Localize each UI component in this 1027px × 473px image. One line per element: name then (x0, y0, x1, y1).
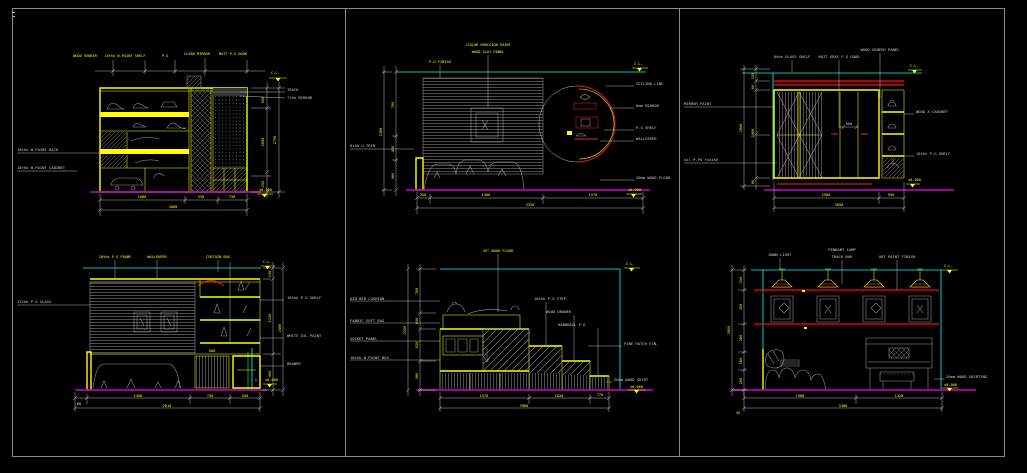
p3-dim-h: 2500 (822, 193, 831, 197)
p1-dim-h-total: 3060 (169, 205, 178, 209)
p4-right-note: 18thk P.G SHELF (287, 295, 322, 300)
p6-elev-floor: ±0.000 (944, 383, 957, 387)
p5-dim-v: 580 (415, 373, 419, 380)
elevation-flag-icon (910, 184, 915, 188)
p4-left-note: 12thk P.G GLASS (17, 299, 52, 304)
p5-left-note: 18thk W.PAINT BOX (350, 355, 390, 360)
p1-annotations: 18thk W.PAINT RACK 18thk W.PAINT CABINET… (17, 87, 313, 171)
p4-dim-v: 400 (268, 371, 272, 378)
picture-frames (771, 296, 931, 322)
p3-drawing: 600 (742, 73, 954, 190)
p6-dim-v: 350 (739, 304, 743, 311)
bed (93, 364, 181, 388)
p3-elev-floor: ±0.000 (908, 178, 921, 182)
p4-top-note: CURTAIN BOX (206, 255, 231, 259)
p5-left-note: SOCKET PANEL (350, 336, 378, 341)
p2-elev-floor: ±0.000 (628, 188, 641, 192)
p5-step-note: WOOD DRAWER (546, 309, 572, 314)
p5-dim-h: 1620 (555, 394, 564, 398)
p4-dim-h: 750 (207, 394, 214, 398)
p2-dim-v: 700 (391, 102, 395, 109)
steps (529, 346, 609, 390)
p1-dim-v: 2000 (261, 138, 265, 147)
p3-dim-v: 80 (751, 180, 755, 184)
p2-floor-note: 20mm WOOD FLOOR (636, 175, 671, 180)
p3-dim-h-total: 3050 (835, 203, 844, 207)
p2-right-note: CEILING LINE (636, 81, 664, 86)
p5-dim-h-total: 3960 (520, 404, 529, 408)
p3-right-note: WOOD X CABINET (916, 109, 949, 114)
p1-dim-v-total: 2750 (273, 136, 277, 145)
p2-dim-h: 350 (420, 193, 427, 197)
p5-top-note: 45° WOOD FLOOR (483, 249, 514, 253)
p2-elev-top: C.L. (634, 62, 643, 66)
p1-dim-v: 500 (261, 97, 265, 104)
p1-right-note: 7thk MIRROR (287, 95, 313, 100)
p1-left-note: 18thk W.PAINT CABINET (17, 165, 66, 170)
p4-dim-v: 130 (268, 271, 272, 278)
p3-inner-dim: 600 (846, 121, 854, 126)
p5-step-note: HANDRAIL P.G (558, 322, 586, 327)
p3-dim-v: 2400 (751, 129, 755, 138)
p1-dim-h: 730 (229, 195, 236, 199)
p5-elev-floor: ±0.000 (630, 385, 643, 389)
p5-dim-v: 700 (415, 288, 419, 295)
p3-top-note: WOOD VENEER PANEL (861, 47, 901, 52)
piano (866, 338, 932, 390)
p1-dim-h: 1800 (138, 195, 147, 199)
cad-sheet: WOOD VENEER 18thk W.PAINT SHELF P.G CLEA… (0, 0, 1027, 473)
p5-drawing (418, 269, 653, 390)
elevation-flag-icon (637, 68, 642, 72)
p6-dim-v-total: 2850 (727, 326, 731, 335)
p1-top-note: 18thk W.PAINT SHELF (104, 54, 145, 58)
p4-right-note: DRAWER (287, 361, 301, 366)
p2-dim-h-total: 3320 (526, 203, 535, 207)
p6-annotations: DOWN LIGHT PENDANT LAMP TRACK BAR ART PA… (769, 247, 988, 379)
p4-top-note: WALLPAPER (147, 255, 167, 259)
p1-dim-v: 250 (261, 181, 265, 188)
p6-drawing (732, 269, 976, 390)
p1-elev-top: C.L. (271, 71, 280, 75)
p1-top-note: MATT P.G DOOR (219, 52, 248, 56)
p2-dim-v: 480 (391, 173, 395, 180)
p5-left-note: FABRIC SOFT BAG (350, 318, 385, 323)
elevation-flag-icon (947, 270, 952, 274)
p6-top-note: PENDANT LAMP (828, 247, 856, 252)
p2-top-note: P.G FINISH (429, 60, 451, 64)
p6-floor-note: 20mm WOOD SKIRTING (946, 374, 988, 379)
p6-top-note: TRACK BAR (832, 254, 853, 259)
p4-dim-h: 1450 (134, 394, 143, 398)
p4-elev-floor: ±0.000 (265, 378, 278, 382)
elevation-flag-icon (634, 390, 639, 394)
p4-dim-h-total: 2810 (163, 404, 172, 408)
p1-dim-h: 530 (198, 195, 205, 199)
p3-left-note: MIRROR PAINT (684, 101, 712, 106)
p3-dim-v: 60 (751, 85, 755, 89)
p2-left-note: 8thk U-TRIM (350, 143, 376, 148)
p5-dim-h: 1570 (480, 394, 489, 398)
p3-top-note: 8thk GLASS SHELF (774, 54, 811, 59)
bed (765, 350, 826, 390)
p2-dim-h: 1570 (589, 193, 598, 197)
p2-right-note: P.G SHELF (636, 125, 657, 130)
p6-dim-v: 200 (739, 378, 743, 385)
p5-right-note: PINE HATCH FIN. (624, 341, 658, 346)
p6-dim-v: 280 (739, 335, 743, 342)
p5-dim-h: 770 (597, 393, 604, 397)
p3-dim-v-total: 2840 (739, 124, 743, 133)
elevation-flag-icon (267, 384, 272, 388)
p6-dim-v: 250 (739, 277, 743, 284)
p4-right-note: WHITE OIL PAINT (287, 333, 322, 338)
elevation-flag-icon (276, 78, 281, 82)
p1-top-note: CLEAR MIRROR (184, 52, 211, 56)
p1-elev-floor: ±0.000 (259, 188, 272, 192)
p5-step-note: 18thk P.G STEP (534, 296, 567, 301)
p3-dim-v: 150 (751, 73, 755, 80)
p6-dim-h: 1980 (796, 394, 805, 398)
elevation-flag-icon (631, 194, 636, 198)
p3-right-note: 18thk P.G SHELF (916, 151, 951, 156)
p2-right-note: WALLPAPER (636, 136, 657, 141)
p6-dim-h-total: 3300 (839, 404, 848, 408)
p5-left-note: KID BED CUSHION (350, 296, 385, 301)
p1-right-note: TRACK (287, 87, 299, 92)
elevation-panel-1: WOOD VENEER 18thk W.PAINT SHELF P.G CLEA… (15, 8, 345, 238)
p3-left-note: oil P.PG finish (684, 157, 718, 162)
p1-left-note: 18thk W.PAINT RACK (17, 147, 59, 152)
p6-elev-top: C.L. (944, 264, 953, 268)
p4-dim-h: 60 (77, 402, 81, 406)
p2-center-note: +COLOR EMULSION PAINT (465, 43, 511, 47)
nightstand (416, 158, 423, 190)
p6-dimensions: 250 350 280 180 200 2850 1980 1320 3300 … (727, 264, 958, 415)
elevation-panel-3: 600 150 60 2400 80 2840 2500 550 3050 C.… (682, 8, 1007, 238)
elevation-panel-5: 700 650 620 580 2550 1570 1620 770 3960 … (348, 240, 680, 462)
p5-dim-v: 620 (415, 342, 419, 349)
column-divider-1 (345, 8, 346, 457)
desk (233, 356, 260, 388)
p6-top-note: DOWN LIGHT (769, 252, 793, 257)
p4-dim-v: 1120 (268, 314, 272, 323)
elevation-panel-4: 580 130 1120 400 2400 60 1450 750 550 28… (15, 240, 345, 462)
rainbow-arc (198, 281, 224, 287)
p4-inner-dim: 580 (209, 349, 216, 353)
p3-top-note: MATT GRAY P.G DOOR (818, 54, 860, 59)
p6-dim-h: 45 (736, 411, 740, 415)
p5-elev-top: C.L. (626, 262, 635, 266)
p3-dim-h: 550 (888, 193, 895, 197)
p5-floor-note: 20mm WOOD SKIRT (614, 377, 649, 382)
p1-top-note: P.G (162, 54, 169, 58)
elevation-flag-icon (262, 194, 267, 198)
elevation-panel-2: 700 450 480 2380 350 1400 1570 3320 C.L.… (348, 8, 680, 238)
pendant-lamps (772, 269, 930, 288)
p4-dim-v-total: 2400 (278, 324, 282, 333)
p1-top-note: WOOD VENEER (73, 54, 98, 58)
p1-drawing (90, 76, 261, 192)
p5-dim-v-total: 2550 (403, 326, 407, 335)
p5-dim-v: 650 (415, 318, 419, 325)
moon-shelf (539, 86, 615, 162)
p6-dim-v: 180 (739, 358, 743, 365)
p4-dim-h: 550 (242, 394, 249, 398)
p4-drawing: 580 (75, 262, 267, 390)
p2-dim-h: 1400 (482, 193, 491, 197)
elevation-panel-6: 250 350 280 180 200 2850 1980 1320 3300 … (684, 240, 1014, 462)
p4-top-note: 18thk P.G FRAME (99, 255, 131, 259)
p2-drawing (396, 72, 650, 190)
p4-elev-top: C.L. (263, 260, 272, 264)
bedding (447, 302, 519, 314)
p6-dim-h: 1320 (895, 394, 904, 398)
elevation-flag-icon (629, 268, 634, 272)
p2-center-note: WOOD SLAT PANEL (472, 50, 504, 54)
elevation-flag-icon (265, 266, 270, 270)
p3-elev-top: C.L. (910, 64, 919, 68)
p2-right-note: 8mm MIRROR (636, 103, 660, 108)
p2-dim-v-total: 2380 (379, 128, 383, 137)
p6-top-note: ART PAINT FINISH (879, 254, 916, 259)
